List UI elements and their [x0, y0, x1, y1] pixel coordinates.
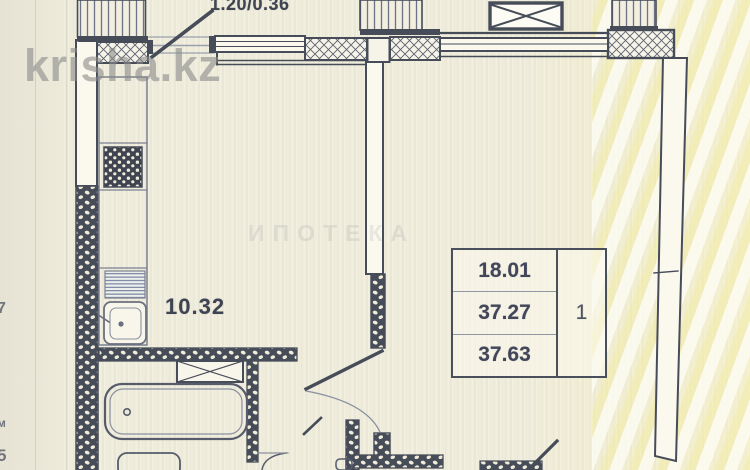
- room-door-swing: [306, 351, 382, 389]
- interior-wall-hatched: [371, 274, 385, 348]
- area-value-row: 18.01: [453, 250, 556, 292]
- entry-door-swing: [529, 441, 557, 469]
- hall-wall: [346, 455, 443, 468]
- bathtub: [105, 384, 247, 439]
- radiator: [105, 271, 145, 298]
- balcony-dimension-label: 1.20/0.36: [210, 0, 290, 15]
- washing-machine-symbol: [177, 361, 243, 382]
- room-count-cell: 1: [558, 250, 605, 376]
- area-values-column: 18.01 37.27 37.63: [453, 250, 558, 376]
- hall-door-swing: [304, 418, 321, 434]
- bathroom-door-swing: [262, 453, 286, 470]
- right-exterior-wall: [655, 58, 687, 461]
- vent-shaft-symbol: [490, 3, 562, 29]
- stove: [104, 147, 142, 187]
- wall-junction: [368, 38, 390, 62]
- kitchen-sink: [100, 302, 146, 344]
- area-value-row: 37.63: [453, 335, 556, 376]
- clipped-edge-mark: 7: [0, 300, 6, 318]
- bathroom-wall: [247, 361, 258, 462]
- floor-plan-photo: krisha.kz ИПОТЕКА 1.20/0.36 10.32 7 м 5 …: [0, 0, 750, 470]
- area-info-table: 18.01 37.27 37.63 1: [451, 248, 607, 378]
- toilet: [118, 453, 180, 470]
- clipped-edge-mark: м: [0, 416, 6, 430]
- center-watermark: ИПОТЕКА: [248, 220, 415, 247]
- left-exterior-wall-hatched: [76, 186, 98, 470]
- clipped-edge-mark: 5: [0, 446, 6, 466]
- exterior-wall-corner: [608, 30, 674, 58]
- exterior-wall-block: [305, 38, 367, 60]
- krisha-brand-watermark: krisha.kz: [24, 40, 221, 92]
- balcony-center: [360, 0, 422, 30]
- bathroom-wall: [99, 348, 297, 361]
- balcony-left: [78, 0, 146, 37]
- wall-band: [360, 29, 440, 35]
- kitchen-window: [215, 36, 305, 52]
- balcony-right: [612, 0, 656, 27]
- kitchen-area-label: 10.32: [165, 294, 225, 320]
- exterior-wall-block: [390, 37, 440, 60]
- area-value-row: 37.27: [453, 292, 556, 334]
